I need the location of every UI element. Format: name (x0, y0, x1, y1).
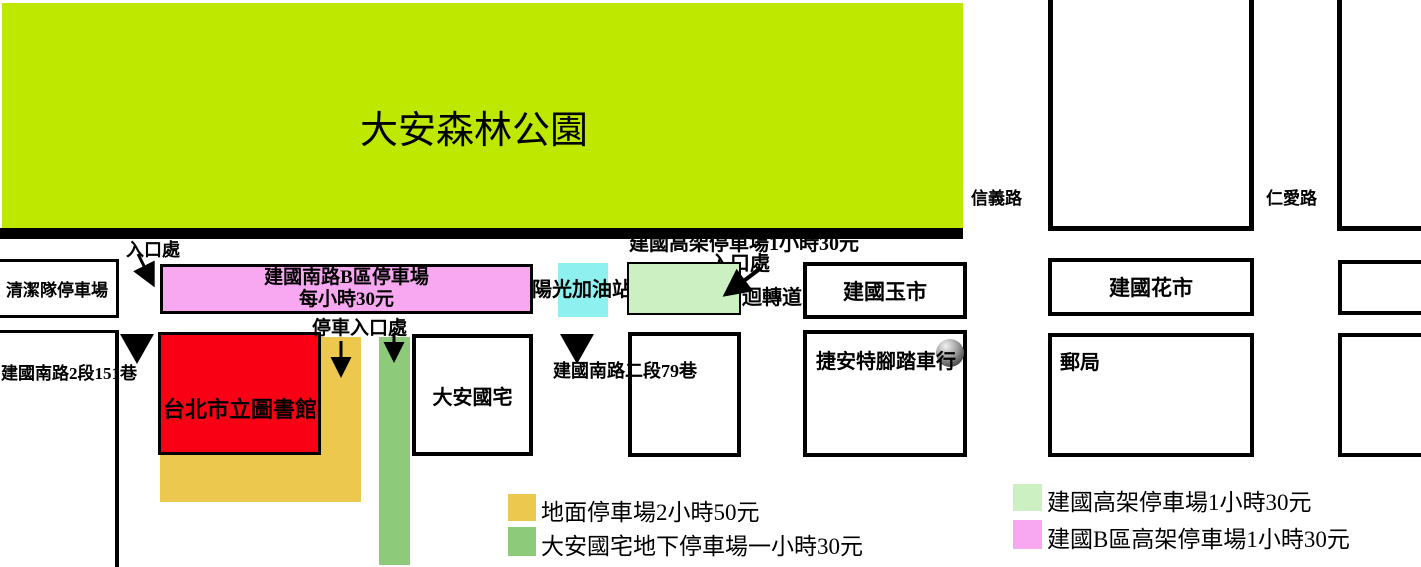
post-office: 郵局 (1048, 333, 1254, 457)
legend-label-elevated-lot: 建國高架停車場1小時30元 (1047, 483, 1312, 517)
parking-map: 大安森林公園 信義路 仁愛路 清潔隊停車場 入口處 建國南路B區停車場 每小時3… (0, 0, 1421, 567)
b-lot-name: 建國南路B區停車場 (264, 267, 429, 289)
legend-label-surface-lot: 地面停車場2小時50元 (541, 493, 760, 527)
b-lot-price: 每小時30元 (299, 289, 394, 311)
jianguo-b-zone-parking-lot: 建國南路B區停車場 每小時30元 (160, 264, 533, 314)
road-label-lane151: 建國南路2段151巷 (1, 365, 137, 383)
post-office-label: 郵局 (1060, 346, 1100, 375)
road-label-lane79: 建國南路二段79巷 (553, 362, 697, 381)
city-block-lane79 (628, 332, 741, 457)
city-block-top-b (1337, 0, 1421, 231)
legend-swatch-b-zone-lot (1013, 520, 1042, 549)
road-label-xinyi: 信義路 (971, 190, 1022, 208)
legend-swatch-surface-lot (508, 494, 536, 521)
surface-lot-arrow-icon (326, 338, 356, 394)
legend-swatch-underground-lot (508, 527, 536, 556)
lane-marker-triangle-icon (560, 334, 594, 364)
cleaning-team-parking-lot: 清潔隊停車場 (0, 259, 119, 318)
legend-label-underground-lot: 大安國宅地下停車場一小時30元 (541, 527, 863, 561)
library-label: 台北市立圖書館 (163, 392, 317, 424)
daan-housing-label: 大安國宅 (433, 381, 513, 410)
flower-market-label: 建國花市 (1109, 272, 1193, 302)
bike-shop-label: 捷安特腳踏車行 (816, 345, 956, 374)
legend-swatch-elevated-lot (1013, 484, 1042, 511)
gas-station-label: 陽光加油站 (532, 280, 632, 301)
parking-entrance-label: 停車入口處 (312, 319, 407, 339)
jianguo-flower-market: 建國花市 (1048, 258, 1254, 316)
cleaning-team-label: 清潔隊停車場 (6, 276, 108, 301)
city-block-top-a (1048, 0, 1254, 231)
u-turn-label: 迴轉道 (742, 288, 802, 309)
taipei-city-library: 台北市立圖書館 (158, 332, 321, 455)
elevated-lot-price-note: 建國高架停車場1小時30元 (629, 234, 859, 255)
city-block-bottom-right (1338, 333, 1421, 457)
daan-public-housing: 大安國宅 (412, 334, 533, 456)
road-label-renai: 仁愛路 (1266, 190, 1317, 208)
park-title: 大安森林公園 (360, 112, 588, 152)
city-block-mid-right (1338, 260, 1421, 315)
giant-bike-shop: 捷安特腳踏車行 (803, 330, 967, 457)
legend-label-b-zone-lot: 建國B區高架停車場1小時30元 (1047, 520, 1350, 554)
jade-market-label: 建國玉市 (843, 276, 927, 306)
lane-marker-triangle-icon (120, 334, 154, 364)
jianguo-jade-market: 建國玉市 (803, 262, 967, 319)
